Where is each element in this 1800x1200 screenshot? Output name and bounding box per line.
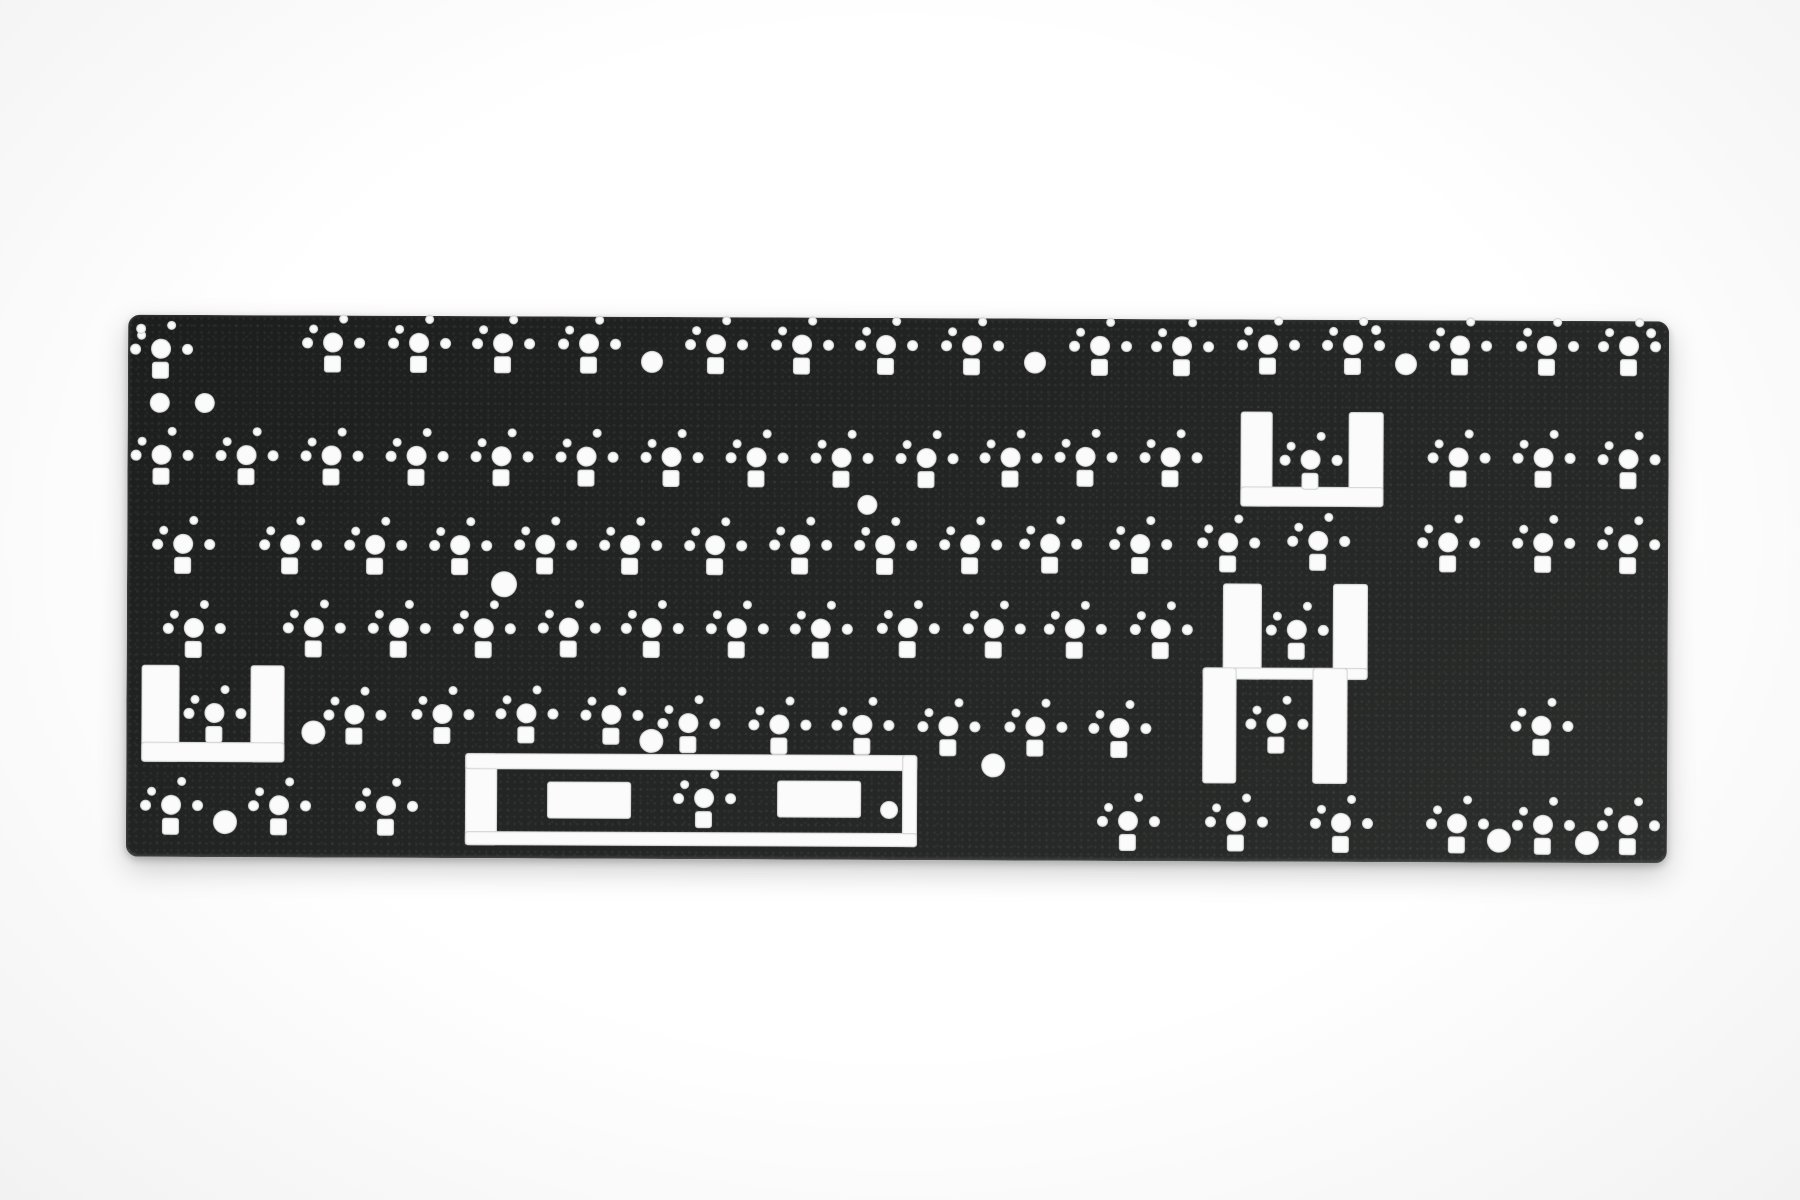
right-pin-hole [215,623,226,634]
top-pin-hole [1463,795,1472,804]
stabilizer-cutout [1202,667,1237,783]
stabilizer-cutout [1312,668,1348,784]
upleft-pin-hole [862,327,871,336]
main-hole [516,703,536,723]
right-pin-hole [1056,722,1067,733]
mounting-hole [150,393,170,413]
right-pin-hole [396,540,407,551]
upleft-pin-hole [393,438,402,447]
right-pin-hole [505,623,516,634]
left-pin-hole [621,623,632,634]
upleft-pin-hole [1317,805,1326,814]
mounting-hole [1024,352,1046,374]
led-square-hole [1538,359,1555,376]
right-pin-hole [1203,341,1214,352]
right-pin-hole [1297,719,1308,730]
top-pin-hole [177,777,186,786]
led-square-hole [536,557,553,574]
main-hole [706,334,726,354]
main-hole [493,333,513,353]
top-pin-hole [1550,430,1559,439]
top-pin-hole [575,600,584,609]
led-square-hole [1001,470,1018,487]
upleft-pin-hole [628,610,637,619]
top-pin-hole [1317,432,1326,441]
led-square-hole [322,468,339,485]
right-pin-hole [204,539,215,550]
led-square-hole [1301,473,1318,490]
led-square-hole [1619,557,1636,574]
left-pin-hole [283,622,294,633]
led-square-hole [390,641,407,658]
left-pin-hole [411,709,422,720]
led-square-hole [1620,359,1637,376]
main-hole [984,618,1004,638]
right-pin-hole [1032,453,1043,464]
mounting-hole [213,810,237,834]
led-square-hole [1532,739,1549,756]
upleft-pin-hole [1517,708,1526,717]
led-square-hole [1309,554,1326,571]
led-square-hole [475,641,492,658]
right-pin-hole [590,623,601,634]
right-pin-hole [566,540,577,551]
left-pin-hole [980,452,991,463]
main-hole [620,535,640,555]
right-pin-hole [354,338,365,349]
cutouts-layer [128,315,1669,322]
top-pin-hole [1146,516,1155,525]
right-pin-hole [1192,452,1203,463]
left-pin-hole [131,450,142,461]
top-pin-hole [618,687,627,696]
left-pin-hole [769,539,780,550]
left-pin-hole [556,452,567,463]
main-hole [1534,448,1554,468]
upleft-pin-hole [1051,611,1060,620]
right-pin-hole [523,451,534,462]
mounting-hole [136,324,146,334]
top-pin-hole [1000,600,1009,609]
right-pin-hole [736,540,747,551]
right-pin-hole [311,539,322,550]
led-square-hole [1026,740,1043,757]
led-square-hole [1534,838,1551,855]
led-square-hole [963,358,980,375]
led-square-hole [1449,470,1466,487]
led-square-hole [791,558,808,575]
upleft-pin-hole [713,610,722,619]
right-pin-hole [440,338,451,349]
top-pin-hole [1324,513,1333,522]
right-pin-hole [1562,721,1573,732]
led-square-hole [345,728,362,745]
right-pin-hole [1564,820,1575,831]
right-pin-hole [608,452,619,463]
stabilizer-cutout [1333,584,1368,680]
right-pin-hole [993,340,1004,351]
led-square-hole [305,640,322,657]
right-pin-hole [1107,452,1118,463]
top-pin-hole [361,687,370,696]
left-pin-hole [748,719,759,730]
main-hole [960,534,980,554]
right-pin-hole [183,450,194,461]
right-pin-hole [673,623,684,634]
led-square-hole [1439,555,1456,572]
left-pin-hole [495,708,506,719]
top-pin-hole [449,686,458,695]
main-hole [1618,815,1638,835]
left-pin-hole [1130,624,1141,635]
left-pin-hole [1597,539,1608,550]
right-pin-hole [1318,625,1329,636]
main-hole [161,795,181,815]
top-pin-hole [338,428,347,437]
top-pin-hole [200,600,209,609]
top-pin-hole [1167,601,1176,610]
top-pin-hole [1465,429,1474,438]
left-pin-hole [558,339,569,350]
main-hole [642,618,662,638]
upleft-pin-hole [884,610,893,619]
led-square-hole [407,469,424,486]
upleft-pin-hole [1137,611,1146,620]
led-square-hole [451,558,468,575]
main-hole [790,535,810,555]
right-pin-hole [524,338,535,349]
upleft-pin-hole [1116,526,1125,535]
upleft-pin-hole [479,325,488,334]
right-pin-hole [1649,539,1660,550]
top-pin-hole [1547,698,1556,707]
led-square-hole [560,641,577,658]
upleft-pin-hole [1026,526,1035,535]
upleft-pin-hole [147,787,156,796]
top-pin-hole [710,770,719,779]
left-pin-hole [163,623,174,634]
upleft-pin-hole [1158,328,1167,337]
led-square-hole [152,362,169,379]
top-pin-hole [722,316,731,325]
top-pin-hole [892,317,901,326]
top-pin-hole [1282,696,1291,705]
top-pin-hole [678,429,687,438]
main-hole [344,705,364,725]
top-pin-hole [808,317,817,326]
top-pin-hole [423,428,432,437]
right-pin-hole [651,540,662,551]
main-hole [1130,534,1150,554]
main-hole [1065,619,1085,639]
main-hole [407,446,427,466]
mounting-hole [1371,325,1381,335]
led-square-hole [1131,557,1148,574]
left-pin-hole [355,801,366,812]
upleft-pin-hole [1062,439,1071,448]
led-square-hole [939,739,956,756]
left-pin-hole [1429,340,1440,351]
right-pin-hole [300,800,311,811]
mounting-hole [641,351,663,373]
right-pin-hole [268,450,279,461]
upleft-pin-hole [776,526,785,535]
right-pin-hole [632,710,643,721]
right-pin-hole [842,624,853,635]
left-pin-hole [1044,624,1055,635]
right-pin-hole [800,720,811,731]
top-pin-hole [189,516,198,525]
led-square-hole [643,641,660,658]
upleft-pin-hole [170,610,179,619]
main-hole [474,618,494,638]
main-hole [1331,813,1351,833]
top-pin-hole [320,599,329,608]
top-pin-hole [978,317,987,326]
upleft-pin-hole [1104,803,1113,812]
led-square-hole [621,558,638,575]
left-pin-hole [248,800,259,811]
led-square-hole [728,641,745,658]
main-hole [1161,447,1181,467]
upleft-pin-hole [1604,526,1613,535]
left-pin-hole [1310,818,1321,829]
left-pin-hole [1055,452,1066,463]
main-hole [323,332,343,352]
top-pin-hole [425,315,434,324]
upleft-pin-hole [1433,805,1442,814]
left-pin-hole [130,344,141,355]
left-pin-hole [1417,537,1428,548]
right-pin-hole [1362,818,1373,829]
main-hole [1533,533,1553,553]
right-pin-hole [1121,341,1132,352]
main-hole [832,448,852,468]
main-hole [705,535,725,555]
right-pin-hole [407,801,418,812]
right-pin-hole [737,339,748,350]
left-pin-hole [1598,454,1609,465]
top-pin-hole [763,429,772,438]
led-square-hole [695,811,712,828]
right-pin-hole [1096,624,1107,635]
left-pin-hole [183,708,194,719]
left-pin-hole [685,339,696,350]
upleft-pin-hole [1523,328,1532,337]
main-hole [962,335,982,355]
main-hole [579,334,599,354]
mounting-hole [1487,829,1511,853]
upleft-pin-hole [1076,328,1085,337]
left-pin-hole [790,624,801,635]
left-pin-hole [152,539,163,550]
right-pin-hole [969,721,980,732]
upleft-pin-hole [1095,710,1104,719]
right-pin-hole [463,709,474,720]
top-pin-hole [167,321,176,330]
main-hole [304,617,324,637]
mounting-hole [1395,353,1417,375]
upleft-pin-hole [1252,706,1261,715]
top-pin-hole [533,685,542,694]
right-pin-hole [335,623,346,634]
right-pin-hole [610,339,621,350]
led-square-hole [706,558,723,575]
right-pin-hole [1332,455,1343,466]
right-pin-hole [192,800,203,811]
top-pin-hole [1041,699,1050,708]
top-pin-hole [954,698,963,707]
left-pin-hole [1237,339,1248,350]
right-pin-hole [709,718,720,729]
led-square-hole [1534,471,1551,488]
upleft-pin-hole [190,695,199,704]
upleft-pin-hole [1294,523,1303,532]
upleft-pin-hole [648,439,657,448]
led-square-hole [1332,836,1349,853]
left-pin-hole [471,451,482,462]
upleft-pin-hole [1204,524,1213,533]
right-pin-hole [182,344,193,355]
right-pin-hole [1650,341,1661,352]
led-square-hole [1267,737,1284,754]
top-pin-hole [1347,795,1356,804]
led-square-hole [1041,557,1058,574]
led-square-hole [793,358,810,375]
top-pin-hole [509,315,518,324]
led-square-hole [185,641,202,658]
mounting-hole [639,729,663,753]
top-pin-hole [1303,602,1312,611]
left-pin-hole [429,540,440,551]
right-pin-hole [1481,341,1492,352]
top-pin-hole [466,517,475,526]
main-hole [1218,532,1238,552]
top-pin-hole [1125,700,1134,709]
mounting-hole [491,571,517,597]
main-hole [389,618,409,638]
mounting-hole [1646,328,1656,338]
led-square-hole [1451,358,1468,375]
spacebar-cutout-rect [777,780,861,817]
top-pin-hole [848,430,857,439]
right-pin-hole [1249,538,1260,549]
right-pin-hole [693,452,704,463]
upleft-pin-hole [330,697,339,706]
main-hole [1449,447,1469,467]
left-pin-hole [1510,721,1521,732]
top-pin-hole [1635,318,1644,327]
main-hole [280,534,300,554]
main-hole [1090,336,1110,356]
main-hole [1438,532,1458,552]
main-hole [917,448,937,468]
main-hole [559,618,579,638]
mounting-hole [1575,831,1599,855]
top-pin-hole [1359,317,1368,326]
upleft-pin-hole [1287,442,1296,451]
upleft-pin-hole [778,326,787,335]
main-hole [409,333,429,353]
left-pin-hole [641,452,652,463]
led-square-hole [1534,556,1551,573]
upleft-pin-hole [1147,439,1156,448]
top-pin-hole [1081,601,1090,610]
top-pin-hole [1056,516,1065,525]
top-pin-hole [976,516,985,525]
led-square-hole [1227,834,1244,851]
upleft-pin-hole [395,325,404,334]
right-pin-hole [906,540,917,551]
main-hole [152,445,172,465]
led-square-hole [281,557,298,574]
left-pin-hole [1245,719,1256,730]
left-pin-hole [514,539,525,550]
mounting-hole [857,495,877,515]
main-hole [151,339,171,359]
led-square-hole [1091,359,1108,376]
left-pin-hole [388,338,399,349]
upleft-pin-hole [1519,807,1528,816]
mounting-hole [981,753,1005,777]
main-hole [432,704,452,724]
upleft-pin-hole [818,440,827,449]
main-hole [792,335,812,355]
left-pin-hole [1069,341,1080,352]
upleft-pin-hole [1212,803,1221,812]
top-pin-hole [551,516,560,525]
led-square-hole [174,557,191,574]
main-hole [450,535,470,555]
upleft-pin-hole [436,527,445,536]
upleft-pin-hole [255,787,264,796]
upleft-pin-hole [664,705,673,714]
upleft-pin-hole [680,780,689,789]
left-pin-hole [877,623,888,634]
led-square-hole [1619,472,1636,489]
right-pin-hole [1480,453,1491,464]
mounting-hole [195,393,215,413]
top-pin-hole [694,695,703,704]
main-hole [1040,534,1060,554]
main-hole [1537,336,1557,356]
main-hole [876,335,896,355]
led-square-hole [832,471,849,488]
upleft-pin-hole [733,439,742,448]
right-pin-hole [1478,819,1489,830]
right-pin-hole [438,451,449,462]
main-hole [898,618,918,638]
led-square-hole [492,469,509,486]
left-pin-hole [1109,539,1120,550]
main-hole [601,705,621,725]
main-hole [1172,336,1192,356]
left-pin-hole [1004,721,1015,732]
top-pin-hole [1017,430,1026,439]
led-square-hole [1288,643,1305,660]
stabilizer-cutout [1223,583,1262,679]
right-pin-hole [948,453,959,464]
left-pin-hole [854,540,865,551]
top-pin-hole [1549,515,1558,524]
right-pin-hole [1140,723,1151,734]
left-pin-hole [1280,455,1291,466]
led-square-hole [270,818,287,835]
left-pin-hole [323,709,334,720]
top-pin-hole [658,600,667,609]
upleft-pin-hole [1519,525,1528,534]
upleft-pin-hole [1244,327,1253,336]
